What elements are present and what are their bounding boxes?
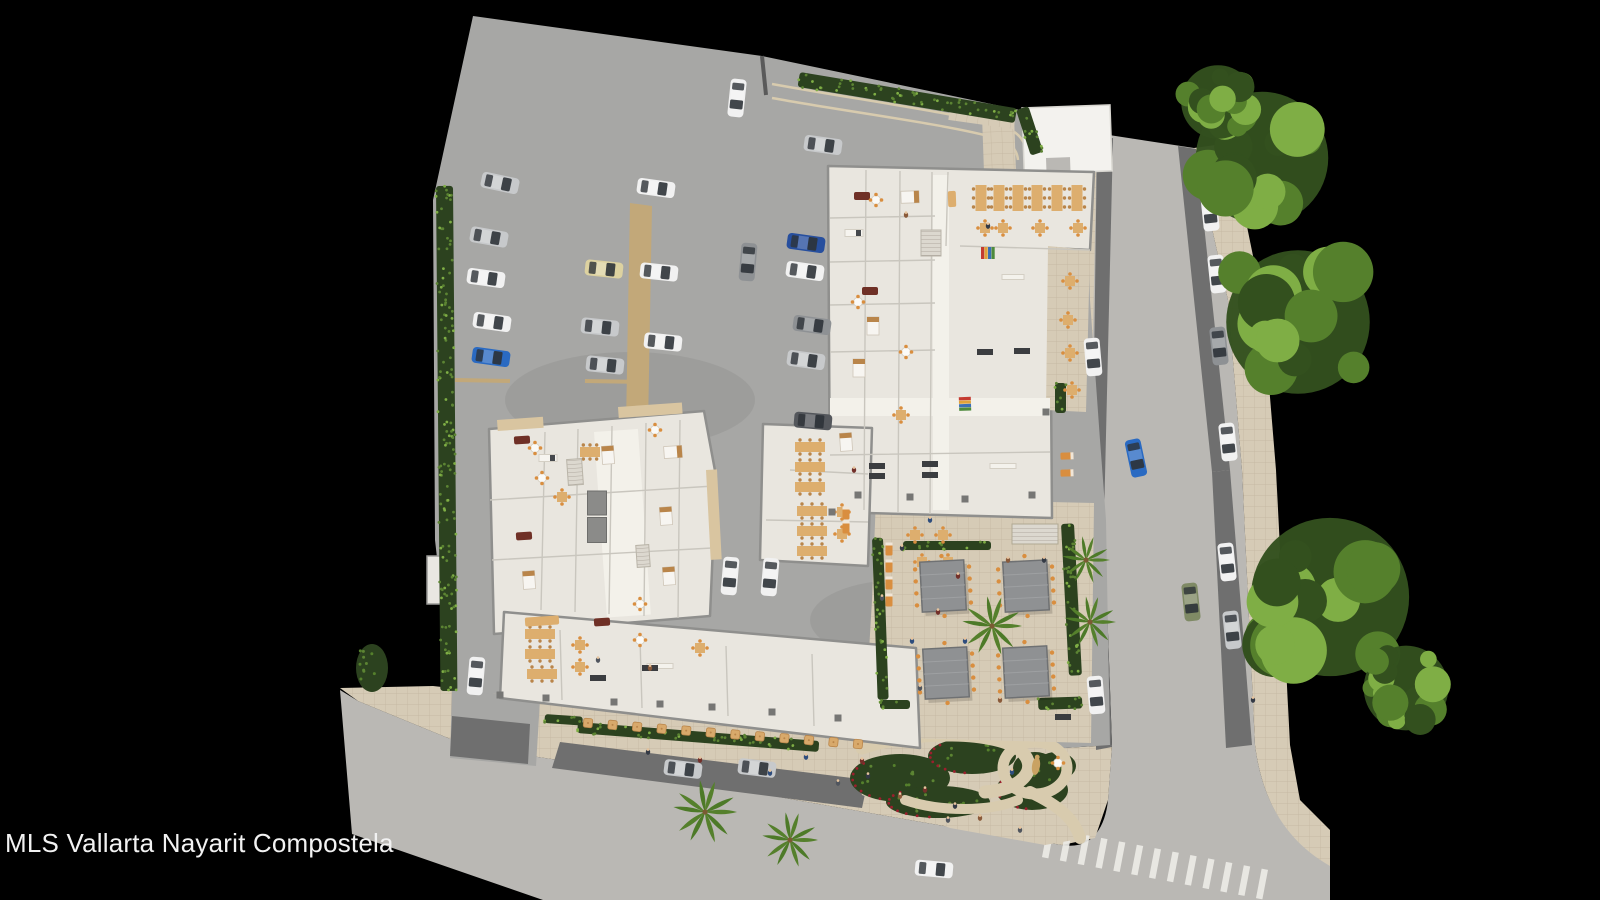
bed bbox=[522, 571, 535, 590]
pillar bbox=[543, 695, 550, 702]
counter bbox=[1002, 275, 1024, 280]
shaft bbox=[588, 518, 607, 543]
table-long-h bbox=[525, 645, 555, 662]
pillar bbox=[1043, 409, 1050, 416]
car bbox=[720, 556, 739, 595]
patio-umbrella bbox=[853, 739, 863, 749]
lounger bbox=[1060, 469, 1073, 476]
shelf-dark bbox=[869, 473, 885, 479]
pillar bbox=[1029, 492, 1036, 499]
kitchen bbox=[539, 455, 557, 462]
car bbox=[738, 242, 757, 281]
sofa bbox=[514, 435, 531, 444]
patio-umbrella bbox=[657, 724, 667, 734]
stairs bbox=[636, 545, 651, 568]
table-long-h bbox=[580, 443, 600, 460]
sofa bbox=[948, 191, 957, 207]
table-long-h bbox=[527, 665, 557, 682]
shelf-dark bbox=[922, 472, 938, 478]
parking-pad-bottom-left bbox=[450, 716, 530, 764]
car bbox=[760, 557, 779, 596]
table-long-h bbox=[797, 522, 827, 539]
bed bbox=[901, 191, 919, 204]
pillar bbox=[855, 492, 862, 499]
watermark-text: MLS Vallarta Nayarit Compostela bbox=[5, 828, 394, 859]
hedge bbox=[879, 699, 910, 710]
pillar bbox=[962, 496, 969, 503]
patio-umbrella bbox=[779, 733, 789, 743]
table-long-v bbox=[1009, 185, 1027, 211]
site-plan-render: MLS Vallarta Nayarit Compostela bbox=[0, 0, 1600, 900]
table-long-h bbox=[795, 438, 825, 455]
pillar bbox=[611, 699, 618, 706]
patio-umbrella bbox=[706, 728, 716, 738]
shelf-dark bbox=[869, 463, 885, 469]
car bbox=[793, 411, 832, 430]
sofa bbox=[854, 192, 870, 200]
sofa bbox=[862, 287, 878, 295]
hedge bbox=[1054, 382, 1068, 413]
pillar bbox=[835, 715, 842, 722]
patio-umbrella bbox=[829, 737, 839, 747]
pillar bbox=[769, 709, 776, 716]
shelf-dark bbox=[977, 349, 993, 355]
lounger bbox=[1060, 452, 1073, 459]
table-long-h bbox=[525, 625, 555, 642]
shelf-dark bbox=[590, 675, 606, 681]
car bbox=[466, 656, 485, 695]
bed bbox=[659, 507, 672, 526]
garden-bed bbox=[356, 644, 388, 692]
stairs bbox=[921, 230, 941, 256]
courtyard-stairs bbox=[1012, 524, 1058, 544]
patio-umbrella bbox=[755, 731, 765, 741]
table-long-h bbox=[795, 458, 825, 475]
lounger bbox=[843, 507, 850, 520]
bed bbox=[839, 433, 852, 452]
lounger bbox=[886, 560, 893, 573]
patio-umbrella bbox=[632, 722, 642, 732]
bed bbox=[601, 446, 614, 465]
counter bbox=[990, 464, 1016, 469]
car bbox=[1086, 675, 1105, 714]
table-long-v bbox=[990, 185, 1008, 211]
table-long-h bbox=[797, 502, 827, 519]
stairs bbox=[567, 459, 584, 486]
table-long-v bbox=[972, 185, 990, 211]
bed bbox=[662, 567, 675, 586]
shelf-dark bbox=[922, 461, 938, 467]
bed bbox=[664, 445, 683, 458]
pillar bbox=[907, 494, 914, 501]
shaft bbox=[588, 491, 607, 515]
bed bbox=[853, 359, 865, 377]
pillar bbox=[657, 701, 664, 708]
lounger bbox=[886, 594, 893, 607]
shelf-dark bbox=[1014, 348, 1030, 354]
patio-umbrella bbox=[583, 718, 593, 728]
table-long-h bbox=[795, 478, 825, 495]
aerial-site-plan bbox=[0, 0, 1600, 900]
patio-umbrella bbox=[608, 720, 618, 730]
table-long-h bbox=[797, 542, 827, 559]
parking-marker bbox=[585, 379, 630, 384]
table-long-v bbox=[1068, 185, 1086, 211]
bed bbox=[867, 317, 879, 335]
patio-umbrella bbox=[804, 735, 814, 745]
shelf-dark bbox=[1055, 714, 1071, 720]
table-long-v bbox=[1028, 185, 1046, 211]
lounger bbox=[886, 577, 893, 590]
sofa bbox=[516, 531, 533, 540]
patio-umbrella bbox=[730, 730, 740, 740]
lounger bbox=[843, 521, 850, 534]
pillar bbox=[497, 692, 504, 699]
patio-umbrella bbox=[681, 726, 691, 736]
car bbox=[1083, 337, 1102, 376]
table-long-v bbox=[1048, 185, 1066, 211]
car bbox=[914, 859, 953, 878]
corridor-cross bbox=[830, 398, 1050, 416]
lounger bbox=[886, 543, 893, 556]
pillar bbox=[829, 509, 836, 516]
kitchen bbox=[845, 230, 863, 237]
pillar bbox=[709, 704, 716, 711]
sofa bbox=[594, 617, 611, 626]
